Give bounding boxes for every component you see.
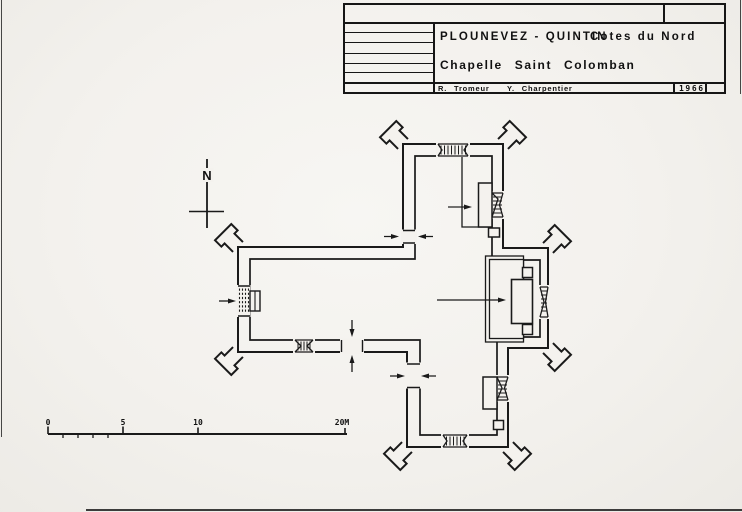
- scanned-drawing-page: N 0 5 10 20M PLOUNEVEZ - QUINTIN Cotes d…: [0, 0, 742, 512]
- window-north-gable: [436, 142, 470, 158]
- door-south-arm-west: [390, 363, 436, 389]
- author-left: R. Tromeur: [438, 84, 490, 93]
- rule: [345, 22, 724, 24]
- title-subject: Chapelle Saint Colomban: [440, 58, 636, 72]
- scale-tick-0: 0: [46, 418, 51, 427]
- buttress-icon: [540, 340, 571, 371]
- chancel-altar: [437, 256, 533, 342]
- window-south-gable: [441, 433, 469, 449]
- north-arrow: N: [189, 159, 224, 228]
- buttress-icon: [500, 439, 531, 470]
- scan-edge-right: [740, 0, 742, 94]
- scale-tick-20m: 20M: [335, 418, 350, 427]
- buttress-icon: [540, 225, 571, 256]
- title-block-border: [343, 3, 726, 94]
- door-north-arm-west: [384, 230, 433, 245]
- door-west-portal: [219, 285, 260, 317]
- rule: [345, 32, 433, 33]
- door-nave-south: [340, 320, 364, 372]
- rule: [345, 63, 433, 64]
- scan-edge-left: [1, 0, 3, 437]
- scale-tick-10: 10: [193, 418, 203, 427]
- rule: [705, 82, 707, 92]
- buttress-icon: [215, 344, 246, 375]
- author-right: Y. Charpentier: [507, 84, 573, 93]
- title-block: PLOUNEVEZ - QUINTIN Cotes du Nord Chapel…: [343, 3, 726, 94]
- title-commune: PLOUNEVEZ - QUINTIN: [440, 31, 608, 43]
- scale-tick-5: 5: [121, 418, 126, 427]
- rule: [345, 72, 433, 73]
- scale-bar: 0 5 10 20M: [46, 418, 350, 438]
- title-department: Cotes du Nord: [590, 31, 697, 43]
- scan-edge-bottom: [86, 509, 742, 511]
- rule: [673, 82, 675, 92]
- buttress-icon: [380, 121, 411, 152]
- north-label: N: [202, 168, 211, 183]
- buttress-icon: [215, 224, 246, 255]
- buttress-icon: [384, 439, 415, 470]
- window-east-gable: [538, 285, 550, 319]
- rule: [663, 5, 665, 22]
- window-nave-south: [293, 338, 315, 354]
- year-label: 1966: [679, 84, 705, 93]
- rule: [345, 53, 433, 54]
- buttress-icon: [495, 121, 526, 152]
- rule: [345, 42, 433, 43]
